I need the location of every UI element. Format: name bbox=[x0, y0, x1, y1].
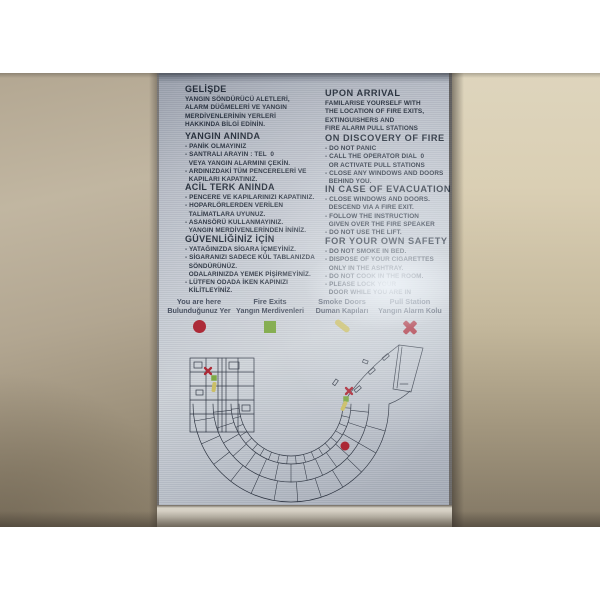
section-line: KİLİTLEYİNİZ. bbox=[185, 287, 323, 295]
legend-label-en: Pull Station bbox=[370, 297, 450, 306]
legend-item: You are hereBulunduğunuz Yer bbox=[159, 297, 239, 333]
section-line: FIRE ALARM PULL STATIONS bbox=[325, 125, 453, 133]
map-marker-you-are-here bbox=[341, 442, 350, 451]
section-line: TALİMATLARA UYUNUZ. bbox=[185, 211, 323, 219]
wall-photo: GELİŞDEYANGIN SÖNDÜRÜCÜ ALETLERİ,ALARM D… bbox=[0, 73, 600, 527]
sign-section: UPON ARRIVALFAMILARISE YOURSELF WITHTHE … bbox=[325, 88, 453, 133]
sign-section: ACİL TERK ANINDA- PENCERE VE KAPILARINIZ… bbox=[185, 182, 323, 235]
section-line: EXTINGUISHERS AND bbox=[325, 117, 453, 125]
sign-section: YANGIN ANINDA- PANİK OLMAYINIZ- SANTRALI… bbox=[185, 131, 323, 184]
sign-section: ON DISCOVERY OF FIRE- DO NOT PANIC- CALL… bbox=[325, 133, 453, 186]
section-line: - PANİK OLMAYINIZ bbox=[185, 143, 323, 151]
fire-exit-icon bbox=[264, 321, 276, 333]
smoke-door-icon bbox=[334, 318, 351, 333]
wall-left bbox=[0, 73, 157, 527]
section-line: THE LOCATION OF FIRE EXITS, bbox=[325, 108, 453, 116]
wall-right bbox=[452, 73, 600, 527]
section-line: ONLY IN THE ASHTRAY. bbox=[325, 265, 453, 273]
legend-row: You are hereBulunduğunuz YerFire ExitsYa… bbox=[159, 297, 454, 345]
section-line: SÖNDÜRÜNÜZ. bbox=[185, 263, 323, 271]
legend-label-tr: Bulunduğunuz Yer bbox=[159, 306, 239, 315]
section-line: DESCEND VIA A FIRE EXIT. bbox=[325, 204, 453, 212]
section-line: OR ACTIVATE PULL STATIONS bbox=[325, 162, 453, 170]
section-line: - DISPOSE OF YOUR CIGARETTES bbox=[325, 256, 453, 264]
map-marker-pull-station bbox=[346, 388, 352, 394]
section-line: - HOPARLÖRLERDEN VERİLEN bbox=[185, 202, 323, 210]
map-room-partitions bbox=[195, 408, 386, 502]
legend-label-en: You are here bbox=[159, 297, 239, 306]
section-line: - ASANSÖRÜ KULLANMAYINIZ. bbox=[185, 219, 323, 227]
section-line: HAKKINDA BİLGİ EDİNİN. bbox=[185, 121, 323, 129]
map-marker-smoke-door bbox=[340, 401, 348, 412]
section-line: GIVEN OVER THE FIRE SPEAKER bbox=[325, 221, 453, 229]
section-heading: FOR YOUR OWN SAFETY bbox=[325, 236, 453, 246]
sign-section: FOR YOUR OWN SAFETY- DO NOT SMOKE IN BED… bbox=[325, 236, 453, 298]
section-line: - DO NOT SMOKE IN BED. bbox=[325, 248, 453, 256]
sign-section: GELİŞDEYANGIN SÖNDÜRÜCÜ ALETLERİ,ALARM D… bbox=[185, 84, 323, 129]
section-heading: UPON ARRIVAL bbox=[325, 88, 453, 98]
section-line: ODALARINIZDA YEMEK PİŞİRMEYİNİZ. bbox=[185, 271, 323, 279]
map-fan-room bbox=[393, 345, 423, 392]
legend-item: Fire ExitsYangın Merdivenleri bbox=[230, 297, 310, 333]
sign-section: GÜVENLİĞİNİZ İÇİN- YATAĞINIZDA SİGARA İÇ… bbox=[185, 234, 323, 296]
section-heading: GELİŞDE bbox=[185, 84, 323, 94]
turkish-column: GELİŞDEYANGIN SÖNDÜRÜCÜ ALETLERİ,ALARM D… bbox=[185, 73, 323, 298]
section-heading: IN CASE OF EVACUATION bbox=[325, 184, 453, 194]
legend-label-en: Fire Exits bbox=[230, 297, 310, 306]
sign-section: IN CASE OF EVACUATION- CLOSE WINDOWS AND… bbox=[325, 184, 453, 237]
section-line: - PLEASE LOCK YOUR bbox=[325, 281, 453, 289]
section-line: VEYA YANGIN ALARMINI ÇEKİN. bbox=[185, 160, 323, 168]
map-marker-fire-exit bbox=[211, 375, 217, 381]
section-line: - DO NOT COOK IN THE ROOM. bbox=[325, 273, 453, 281]
english-column: UPON ARRIVALFAMILARISE YOURSELF WITHTHE … bbox=[325, 73, 453, 298]
section-line: - CLOSE WINDOWS AND DOORS. bbox=[325, 196, 453, 204]
section-line: - FOLLOW THE INSTRUCTION bbox=[325, 213, 453, 221]
section-heading: ACİL TERK ANINDA bbox=[185, 182, 323, 192]
section-line: ALARM DÜĞMELERİ VE YANGIN bbox=[185, 104, 323, 112]
section-line: - CLOSE ANY WINDOWS AND DOORS bbox=[325, 170, 453, 178]
wall-below-sign bbox=[157, 505, 452, 527]
section-line: - DO NOT PANIC bbox=[325, 145, 453, 153]
legend-label-tr: Yangın Alarm Kolu bbox=[370, 306, 450, 315]
section-line: - SİGARANIZI SADECE KÜL TABLANIZDA bbox=[185, 254, 323, 262]
map-courtyard-edge bbox=[239, 404, 343, 456]
floor-plan-map bbox=[184, 341, 436, 505]
section-line: - CALL THE OPERATOR DIAL 0 bbox=[325, 153, 453, 161]
section-heading: YANGIN ANINDA bbox=[185, 131, 323, 141]
section-line: MERDİVENLERİNİN YERLERİ bbox=[185, 113, 323, 121]
section-heading: ON DISCOVERY OF FIRE bbox=[325, 133, 453, 143]
pull-station-icon bbox=[402, 319, 418, 335]
map-marker-smoke-door bbox=[211, 382, 216, 392]
map-marker-fire-exit bbox=[343, 396, 349, 402]
fire-safety-sign: GELİŞDEYANGIN SÖNDÜRÜCÜ ALETLERİ,ALARM D… bbox=[157, 73, 452, 505]
you-are-here-icon bbox=[193, 320, 206, 333]
section-line: FAMILARISE YOURSELF WITH bbox=[325, 100, 453, 108]
legend-label-tr: Yangın Merdivenleri bbox=[230, 306, 310, 315]
legend-item: Pull StationYangın Alarm Kolu bbox=[370, 297, 450, 335]
section-line: - ARDINIZDAKİ TÜM PENCERELERİ VE bbox=[185, 168, 323, 176]
section-line: - SANTRALI ARAYIN : TEL 0 bbox=[185, 151, 323, 159]
section-heading: GÜVENLİĞİNİZ İÇİN bbox=[185, 234, 323, 244]
